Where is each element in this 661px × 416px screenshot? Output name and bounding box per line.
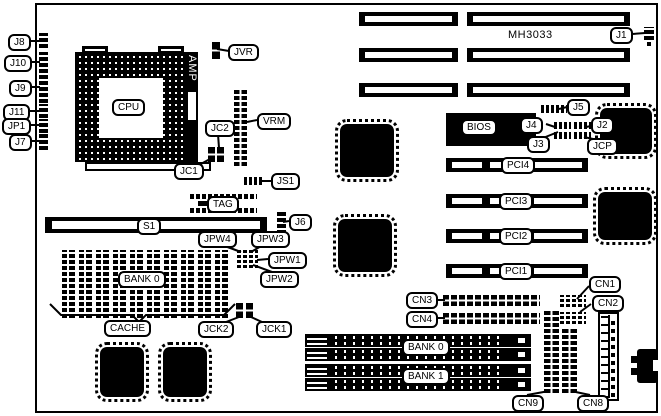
callout-j10: J10 xyxy=(4,55,32,72)
leader-lines xyxy=(0,0,661,416)
callout-cn8: CN8 xyxy=(577,395,609,412)
callout-bank1: BANK 1 xyxy=(402,368,450,385)
callout-cn4: CN4 xyxy=(406,311,438,328)
callout-jpw3: JPW3 xyxy=(251,231,290,248)
callout-j1: J1 xyxy=(610,27,633,44)
callout-tag: TAG xyxy=(207,196,239,213)
callout-j5: J5 xyxy=(567,99,590,116)
callout-js1: JS1 xyxy=(271,173,300,190)
callout-jpw4: JPW4 xyxy=(198,231,237,248)
callout-cn2: CN2 xyxy=(592,295,624,312)
callout-bank0-simm: BANK 0 xyxy=(402,339,450,356)
callout-bank0-dram: BANK 0 xyxy=(118,271,166,288)
callout-j7: J7 xyxy=(9,134,32,151)
callout-cache: CACHE xyxy=(104,320,151,337)
callout-j4: J4 xyxy=(520,117,543,134)
callout-jvr: JVR xyxy=(228,44,259,61)
callout-jck1: JCK1 xyxy=(256,321,292,338)
callout-pci1: PCI1 xyxy=(499,263,533,280)
callout-jc1: JC1 xyxy=(174,163,204,180)
board-canvas: MH3033 AMP xyxy=(0,0,661,416)
callout-pci2: PCI2 xyxy=(499,228,533,245)
callout-pci4: PCI4 xyxy=(501,157,535,174)
callout-jpw1: JPW1 xyxy=(268,252,307,269)
callout-cn1: CN1 xyxy=(589,276,621,293)
callout-jpw2: JPW2 xyxy=(260,271,299,288)
callout-j9: J9 xyxy=(9,80,32,97)
callout-s1: S1 xyxy=(137,218,161,235)
callout-vrm: VRM xyxy=(257,113,291,130)
callout-jcp: JCP xyxy=(587,138,618,155)
callout-pci3: PCI3 xyxy=(499,193,533,210)
callout-j3: J3 xyxy=(527,136,550,153)
callout-jck2: JCK2 xyxy=(198,321,234,338)
callout-cn3: CN3 xyxy=(406,292,438,309)
callout-jc2: JC2 xyxy=(205,120,235,137)
callout-cn9: CN9 xyxy=(512,395,544,412)
callout-j8: J8 xyxy=(8,34,31,51)
callout-j2: J2 xyxy=(591,117,614,134)
callout-j6: J6 xyxy=(289,214,312,231)
callout-jp1: JP1 xyxy=(2,118,31,135)
callout-bios: BIOS xyxy=(461,119,497,136)
callout-cpu: CPU xyxy=(112,99,145,116)
